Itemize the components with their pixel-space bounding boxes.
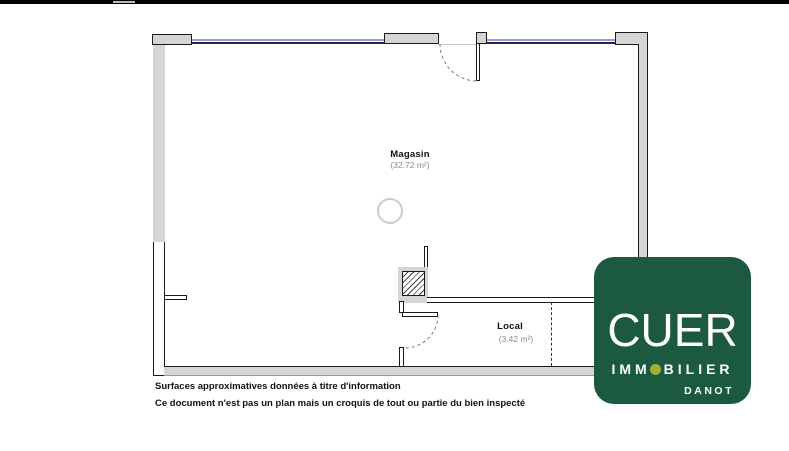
floor-circle-symbol [377,198,403,224]
logo-immobilier-row: IMM BILIER [594,361,751,377]
room-area-local: (3.42 m²) [482,334,550,344]
room-label-local: Local [480,321,540,332]
logo-immo-suffix: BILIER [664,361,734,377]
agency-logo: CUER IMM BILIER DANOT [594,257,751,404]
local-door-arc [405,315,438,348]
logo-o-dot-icon [650,364,661,375]
page: Magasin (32.72 m²) Local (3.42 m²) Surfa… [0,0,789,451]
logo-subname: DANOT [684,385,734,397]
logo-brand-text: CUER [594,307,751,353]
entrance-door-arc [440,44,477,81]
disclaimer-line-2: Ce document n'est pas un plan mais un cr… [155,398,525,409]
logo-immo-prefix: IMM [611,361,650,377]
room-label-magasin: Magasin [370,149,450,160]
room-area-magasin: (32.72 m²) [370,160,450,170]
disclaimer-line-1: Surfaces approximatives données à titre … [155,381,401,392]
